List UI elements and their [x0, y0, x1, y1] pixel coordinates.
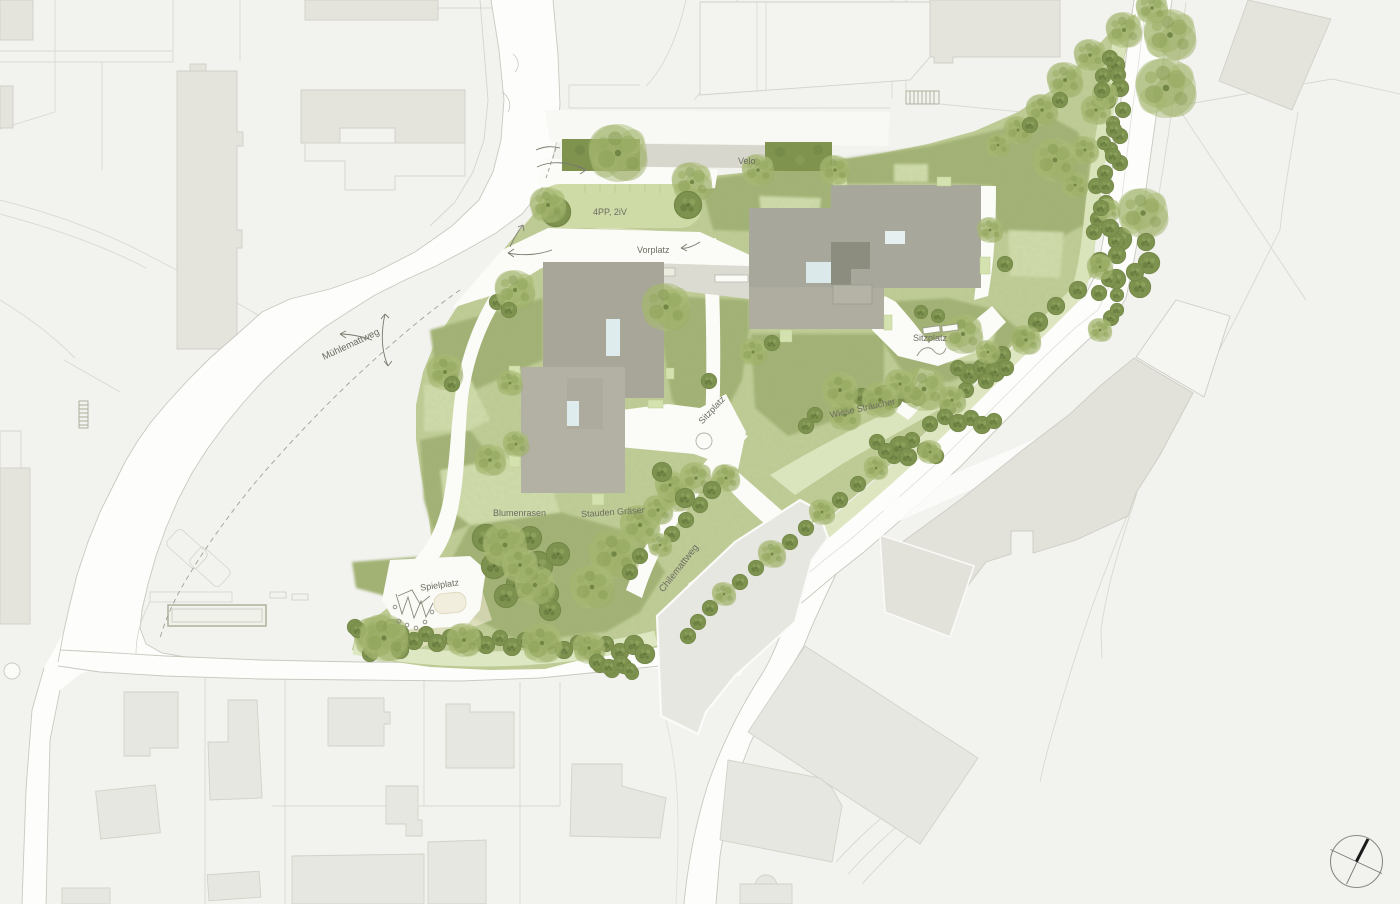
- svg-text:Vorplatz: Vorplatz: [637, 245, 670, 255]
- svg-text:Velo: Velo: [738, 156, 756, 166]
- svg-text:Sitzplatz: Sitzplatz: [913, 333, 948, 343]
- svg-text:Blumenrasen: Blumenrasen: [493, 508, 546, 518]
- svg-text:4PP, 2iV: 4PP, 2iV: [593, 207, 627, 217]
